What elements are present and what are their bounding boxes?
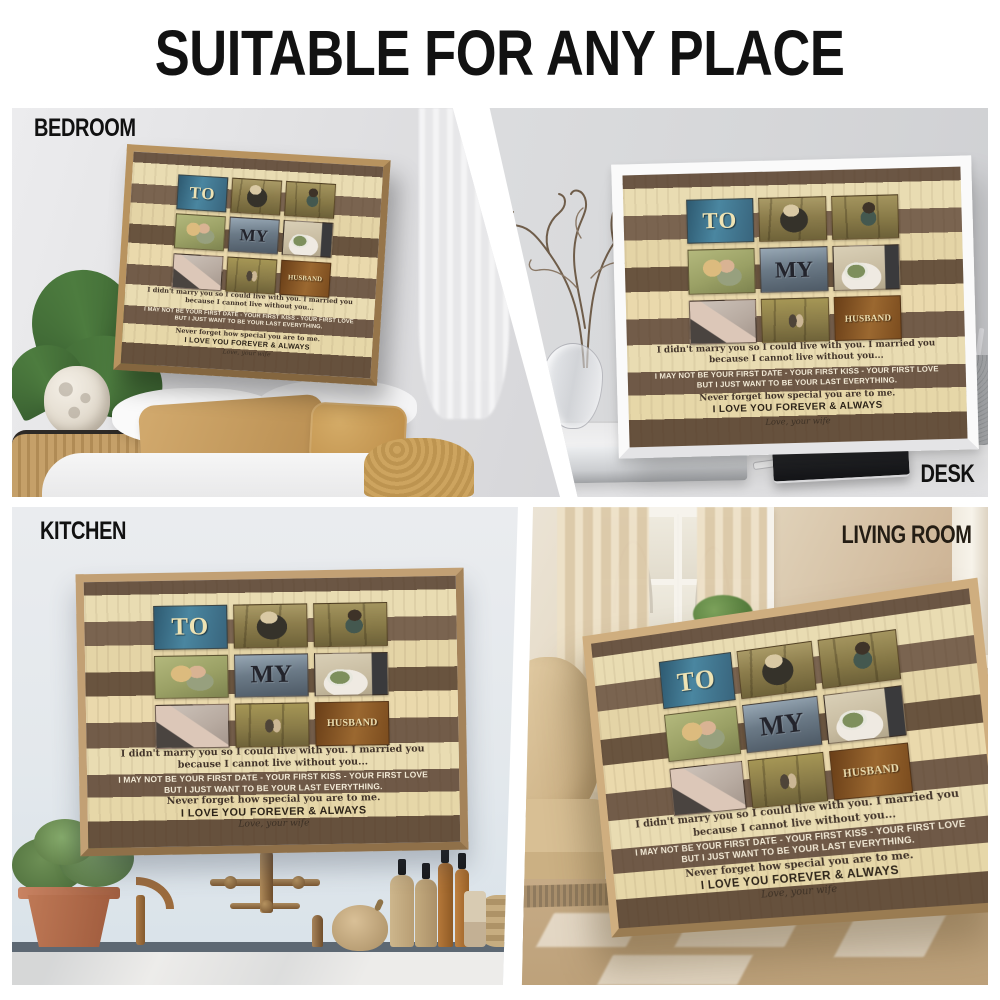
sheer-curtain xyxy=(419,108,509,419)
gourd xyxy=(332,905,388,951)
photo-couple-piggyback xyxy=(284,181,336,219)
canvas-print: TO MY HUSBAND I didn't marry you so I co… xyxy=(591,588,988,928)
photo-hands-with-ring xyxy=(688,299,757,345)
photo-couple-piggyback xyxy=(313,602,388,647)
oil-bottle xyxy=(415,879,437,947)
canvas-word-husband-tile: HUSBAND xyxy=(834,295,903,341)
canvas-word-husband-tile: HUSBAND xyxy=(315,701,390,746)
canvas-print: TO MY HUSBAND I didn't marry you so I co… xyxy=(84,576,461,848)
photo-grid: TO MY HUSBAND xyxy=(153,602,390,748)
canvas-word-my: MY xyxy=(758,707,805,743)
photo-couple-hugging xyxy=(664,706,741,762)
photo-couple-piggyback xyxy=(831,194,900,240)
knit-throw xyxy=(364,438,474,497)
wall-canvas-bedroom: TO MY HUSBAND I didn't marry you so I co… xyxy=(113,144,390,386)
photo-couple-piggyback xyxy=(818,628,902,688)
faucet-joint xyxy=(292,876,305,889)
photo-wedding-bouquet xyxy=(314,652,389,697)
photo-couple-hugging xyxy=(174,214,226,252)
scene-living-room: TO MY HUSBAND I didn't marry you so I co… xyxy=(505,507,988,985)
wrapped-bottle xyxy=(464,891,486,947)
photo-couple-kissing xyxy=(230,178,282,216)
canvas-word-my-tile: MY xyxy=(234,653,309,698)
wall-canvas-kitchen: TO MY HUSBAND I didn't marry you so I co… xyxy=(76,568,469,857)
counter-apron xyxy=(12,952,532,985)
oil-bottle xyxy=(390,875,414,947)
textured-vase xyxy=(44,366,110,436)
product-lifestyle-collage: SUITABLE FOR ANY PLACE BEDROOM TO MY HUS… xyxy=(0,0,1000,1000)
photo-couple-kissing xyxy=(736,640,816,699)
photo-couple-in-orchard xyxy=(225,256,277,294)
amber-bottle xyxy=(438,863,453,947)
canvas-word-my: MY xyxy=(775,256,814,283)
photo-hands-with-ring xyxy=(172,253,224,291)
canvas-word-to: TO xyxy=(702,208,738,235)
faucet-joint xyxy=(224,876,237,889)
canvas-word-to: TO xyxy=(189,183,216,205)
faucet-joint xyxy=(260,900,273,913)
small-faucet xyxy=(136,895,145,945)
photo-hands-with-ring xyxy=(155,704,230,749)
canvas-word-my-tile: MY xyxy=(228,217,280,255)
canvas-word-my-tile: MY xyxy=(760,246,829,292)
sunlight-patch xyxy=(597,955,753,985)
photo-wedding-bouquet xyxy=(824,685,908,744)
living-room-label: LIVING ROOM xyxy=(809,521,972,550)
photo-grid: TO MY HUSBAND xyxy=(686,194,903,345)
photo-wedding-bouquet xyxy=(282,220,334,258)
photo-couple-in-orchard xyxy=(747,752,828,809)
leaning-canvas-living-room: TO MY HUSBAND I didn't marry you so I co… xyxy=(582,578,988,938)
photo-couple-hugging xyxy=(154,654,229,699)
canvas-print: TO MY HUSBAND I didn't marry you so I co… xyxy=(622,167,967,448)
canvas-word-husband: HUSBAND xyxy=(327,717,378,729)
canvas-print: TO MY HUSBAND I didn't marry you so I co… xyxy=(121,152,383,379)
canvas-word-to-tile: TO xyxy=(686,198,755,244)
photo-couple-in-orchard xyxy=(235,702,310,747)
canvas-word-to: TO xyxy=(676,663,718,698)
page-title: SUITABLE FOR ANY PLACE xyxy=(155,16,845,90)
canvas-word-to-tile: TO xyxy=(153,605,228,650)
terracotta-pot xyxy=(22,895,116,947)
canvas-word-my: MY xyxy=(250,661,292,690)
canvas-word-to: TO xyxy=(171,613,210,642)
photo-hands-with-ring xyxy=(669,761,747,817)
framed-canvas-desk: TO MY HUSBAND I didn't marry you so I co… xyxy=(611,155,979,458)
canvas-word-husband-tile: HUSBAND xyxy=(279,260,331,298)
bottle-cap xyxy=(458,853,466,869)
photo-couple-hugging xyxy=(687,248,756,294)
canvas-word-my: MY xyxy=(239,225,268,247)
photo-couple-in-orchard xyxy=(761,297,830,343)
bottle-cap xyxy=(422,863,430,879)
canvas-word-to-tile: TO xyxy=(177,174,229,212)
canvas-word-husband-tile: HUSBAND xyxy=(829,742,913,800)
poem-signature: Love, your wife xyxy=(95,816,452,846)
photo-grid: TO MY HUSBAND xyxy=(172,174,336,297)
photo-wedding-bouquet xyxy=(832,244,901,290)
photo-couple-kissing xyxy=(758,196,827,242)
header: SUITABLE FOR ANY PLACE xyxy=(0,0,1000,108)
canvas-word-husband: HUSBAND xyxy=(288,274,323,283)
kitchen-label: KITCHEN xyxy=(40,517,148,546)
faucet-knob xyxy=(312,915,323,947)
canvas-word-husband: HUSBAND xyxy=(843,763,900,781)
canvas-word-husband: HUSBAND xyxy=(845,313,892,324)
photo-couple-kissing xyxy=(233,604,308,649)
glass-vase xyxy=(543,343,603,429)
canvas-word-my-tile: MY xyxy=(742,696,823,754)
bottle-cap xyxy=(398,859,406,875)
photo-grid: TO MY HUSBAND xyxy=(658,628,913,816)
bedroom-label: BEDROOM xyxy=(34,114,161,143)
scene-bedroom: BEDROOM TO MY HUSBAND I didn't marry you… xyxy=(12,108,577,497)
canvas-word-to-tile: TO xyxy=(658,652,735,709)
desk-label: DESK xyxy=(907,460,974,489)
scene-kitchen: KITCHEN TO MY xyxy=(12,507,532,985)
